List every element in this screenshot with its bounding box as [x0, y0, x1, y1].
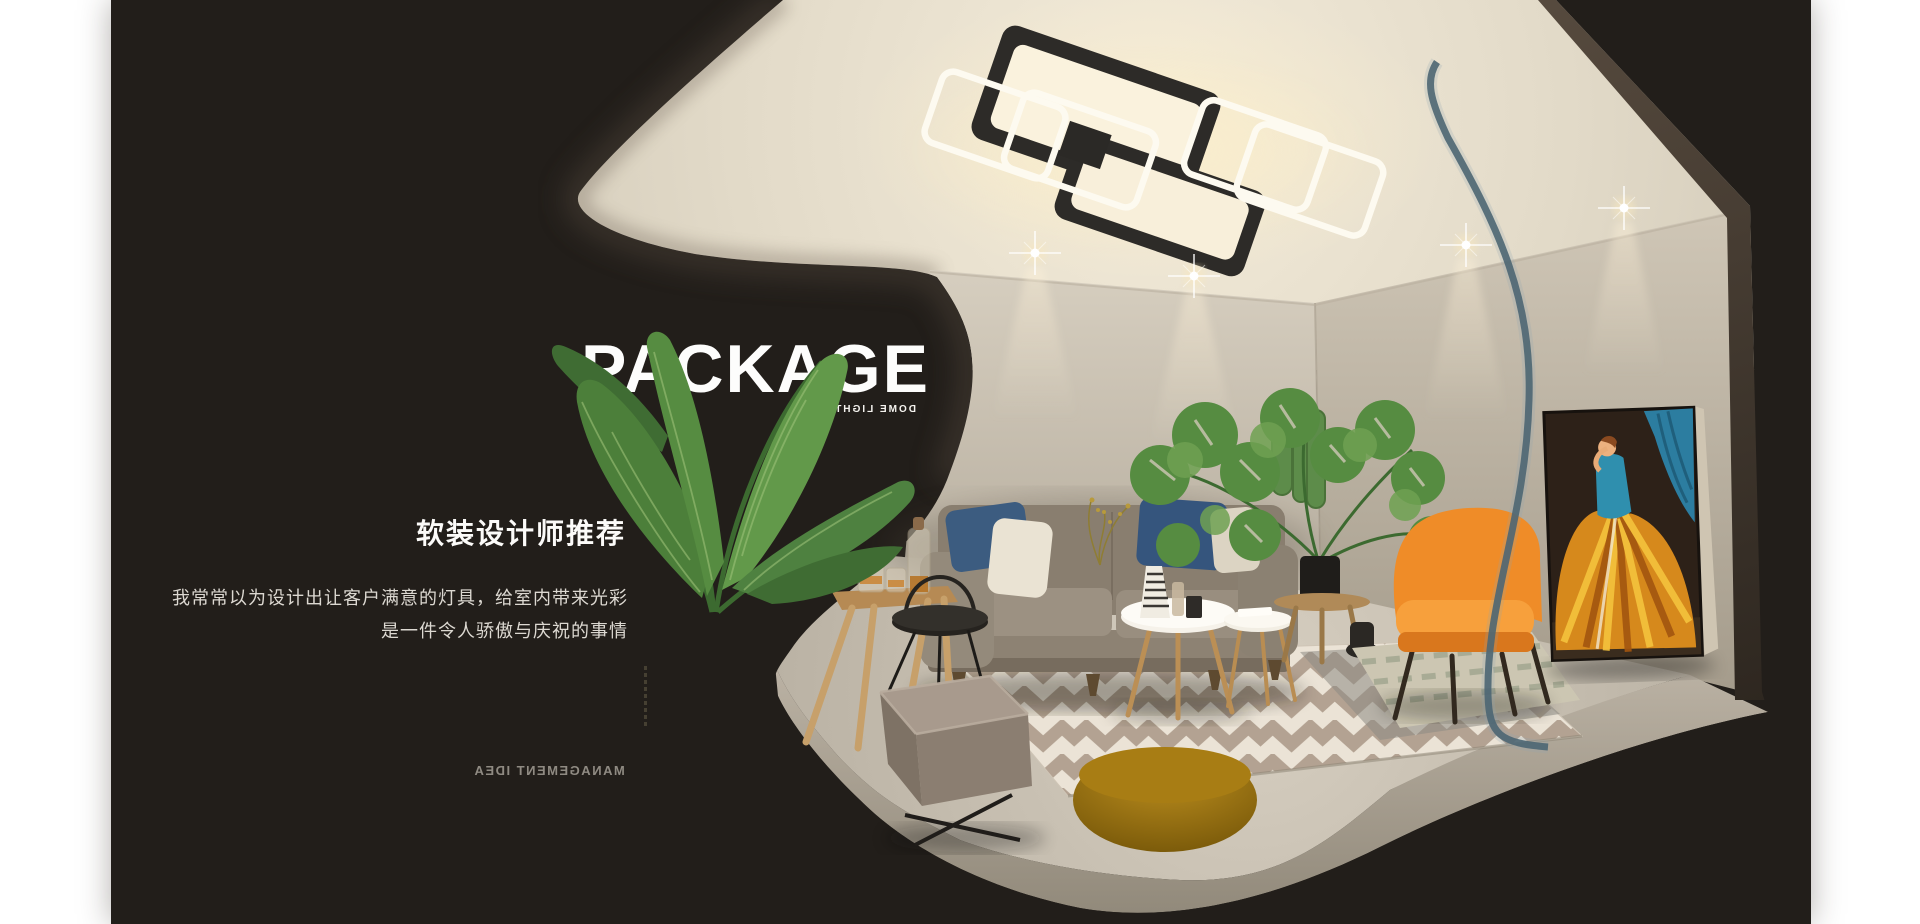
paragraph-line-1: 我常常以为设计出让客户满意的灯具，给室内带来光彩 — [172, 582, 628, 615]
wall-art-painting — [1536, 405, 1719, 683]
black-cup — [1186, 596, 1202, 618]
paragraph-line-2: 是一件令人骄傲与庆祝的事情 — [172, 615, 628, 648]
vertical-caption-decor — [644, 666, 647, 728]
round-ottoman — [1073, 747, 1257, 852]
banner-stage: PACKAGE DOME LIGHT 软装设计师推荐 我常常以为设计出让客户满意… — [0, 0, 1920, 924]
banner-title: PACKAGE — [581, 335, 930, 403]
banner-title-caption-mirrored: DOME LIGHT — [836, 404, 916, 415]
banner-footer-caption-mirrored: MANAGEMENT IDEA — [473, 763, 625, 778]
small-bottle — [1172, 582, 1184, 616]
banner-heading-cn: 软装设计师推荐 — [416, 518, 626, 550]
room-scene-illustration — [0, 0, 1920, 924]
banner-paragraph: 我常常以为设计出让客户满意的灯具，给室内带来光彩 是一件令人骄傲与庆祝的事情 — [172, 582, 628, 648]
